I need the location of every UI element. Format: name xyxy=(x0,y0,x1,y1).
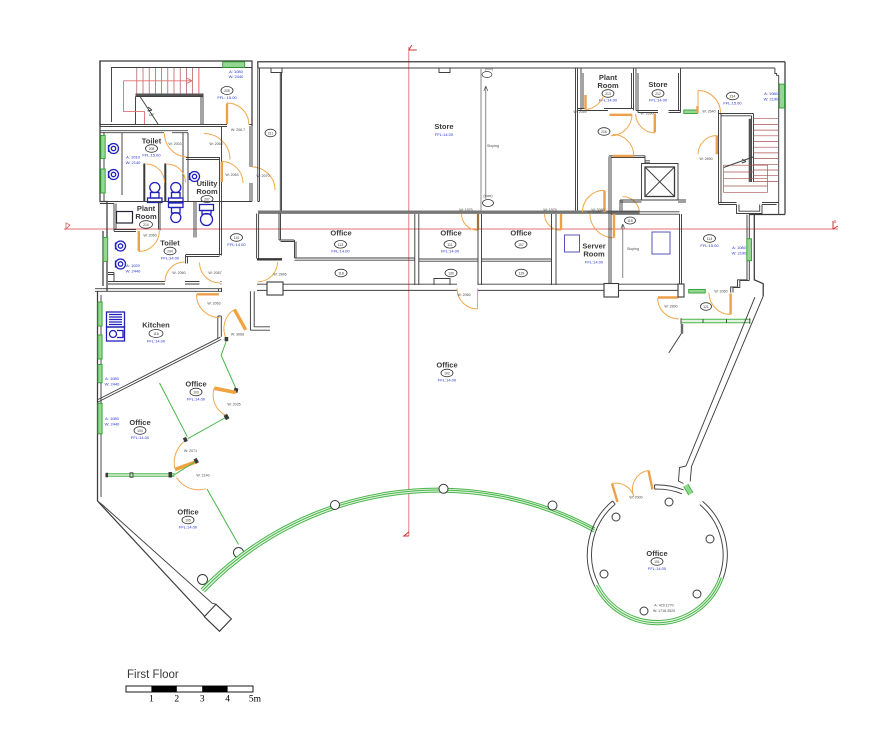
svg-text:107: 107 xyxy=(518,243,524,247)
svg-text:W: 2003: W: 2003 xyxy=(168,142,181,146)
svg-text:FFL:14.00: FFL:14.00 xyxy=(187,397,206,402)
svg-text:211: 211 xyxy=(268,132,274,136)
svg-text:102: 102 xyxy=(444,372,450,376)
svg-text:114: 114 xyxy=(707,237,713,241)
svg-text:W: 2063: W: 2063 xyxy=(209,142,222,146)
svg-text:W: 2190: W: 2190 xyxy=(764,97,780,102)
svg-text:W: 2190: W: 2190 xyxy=(732,251,748,256)
svg-text:W: 2890: W: 2890 xyxy=(664,305,677,309)
svg-text:Office: Office xyxy=(330,229,351,238)
svg-text:Office: Office xyxy=(646,549,667,558)
svg-text:W: 2140: W: 2140 xyxy=(196,474,209,478)
svg-text:FFL:15.00: FFL:15.00 xyxy=(723,101,742,106)
svg-text:113: 113 xyxy=(338,243,344,247)
svg-text:W: 2846: W: 2846 xyxy=(273,273,286,277)
svg-text:216: 216 xyxy=(601,130,607,134)
svg-text:Room: Room xyxy=(597,81,619,90)
svg-text:FFL:14.00: FFL:14.00 xyxy=(648,566,667,571)
svg-text:FFL:14.00: FFL:14.00 xyxy=(331,248,350,253)
svg-text:W: 2060: W: 2060 xyxy=(172,271,185,275)
svg-text:W: 2640: W: 2640 xyxy=(702,110,715,114)
svg-text:S: S xyxy=(833,219,836,224)
svg-text:Room: Room xyxy=(135,212,157,221)
svg-text:Office: Office xyxy=(436,361,457,370)
svg-text:210: 210 xyxy=(143,223,149,227)
svg-text:213: 213 xyxy=(605,92,611,96)
svg-text:A: 429.1770: A: 429.1770 xyxy=(654,604,673,608)
svg-text:W: 2070: W: 2070 xyxy=(256,174,269,178)
svg-text:W: 1975: W: 1975 xyxy=(543,208,556,212)
svg-text:W: 2000: W: 2000 xyxy=(629,496,642,500)
svg-text:A: 1080: A: 1080 xyxy=(764,91,779,96)
svg-text:W: 1718.3520: W: 1718.3520 xyxy=(653,609,675,613)
svg-text:130: 130 xyxy=(448,272,454,276)
svg-text:W: 2067: W: 2067 xyxy=(208,271,221,275)
svg-text:W: 2059: W: 2059 xyxy=(573,110,586,114)
svg-text:A: 1080: A: 1080 xyxy=(732,245,747,250)
svg-text:Office: Office xyxy=(129,418,150,427)
svg-text:208: 208 xyxy=(149,147,155,151)
svg-text:W: 2060: W: 2060 xyxy=(457,293,470,297)
svg-text:1: 1 xyxy=(149,695,154,705)
svg-text:W: 2060: W: 2060 xyxy=(143,234,156,238)
svg-text:Sloping: Sloping xyxy=(627,247,639,251)
svg-text:105: 105 xyxy=(185,519,191,523)
svg-text:FFL:14.00: FFL:14.00 xyxy=(179,525,198,530)
svg-text:116: 116 xyxy=(153,332,159,336)
svg-text:209: 209 xyxy=(224,89,230,93)
svg-text:W: 2440: W: 2440 xyxy=(105,382,121,387)
svg-text:214: 214 xyxy=(730,95,736,99)
svg-text:111: 111 xyxy=(447,243,452,247)
svg-text:Office: Office xyxy=(185,380,206,389)
svg-text:FFL:14.00: FFL:14.00 xyxy=(161,256,180,261)
svg-text:W: 2060: W: 2060 xyxy=(714,290,727,294)
svg-text:W: 2440: W: 2440 xyxy=(229,74,245,79)
svg-text:207: 207 xyxy=(204,198,210,202)
svg-text:FFL:14.00: FFL:14.00 xyxy=(585,260,604,265)
svg-text:Store: Store xyxy=(434,122,453,131)
svg-text:W: 2063: W: 2063 xyxy=(207,302,220,306)
svg-text:FFL:14.00: FFL:14.00 xyxy=(435,132,454,137)
svg-text:W: 2035: W: 2035 xyxy=(227,403,240,407)
svg-text:Office: Office xyxy=(177,508,198,517)
svg-text:A: 1080: A: 1080 xyxy=(105,416,120,421)
svg-text:UP: UP xyxy=(149,113,155,117)
svg-text:A: 1020: A: 1020 xyxy=(126,263,141,268)
svg-text:W: 206.7: W: 206.7 xyxy=(231,128,245,132)
svg-text:101: 101 xyxy=(654,560,660,564)
svg-text:FFL:15.00: FFL:15.00 xyxy=(700,243,719,248)
svg-text:FFL: 15.00: FFL: 15.00 xyxy=(217,95,237,100)
svg-text:Kitchen: Kitchen xyxy=(142,321,170,330)
svg-text:First Floor: First Floor xyxy=(127,669,179,681)
svg-text:W: 3080: W: 3080 xyxy=(591,208,604,212)
svg-text:204: 204 xyxy=(167,250,173,254)
svg-text:115: 115 xyxy=(627,219,633,223)
svg-text:FFL:15.00: FFL:15.00 xyxy=(142,153,161,158)
svg-text:W: 2140: W: 2140 xyxy=(126,160,142,165)
svg-text:Room: Room xyxy=(196,187,218,196)
svg-text:118: 118 xyxy=(338,272,344,276)
svg-text:103: 103 xyxy=(193,391,199,395)
svg-text:121: 121 xyxy=(703,305,709,309)
svg-text:Toilet: Toilet xyxy=(142,137,162,146)
svg-text:Office: Office xyxy=(440,229,461,238)
svg-text:104: 104 xyxy=(137,429,143,433)
svg-text:129: 129 xyxy=(519,272,525,276)
svg-text:W: 1975: W: 1975 xyxy=(459,208,472,212)
svg-text:W: 2690: W: 2690 xyxy=(699,157,712,161)
svg-text:212: 212 xyxy=(655,92,661,96)
svg-text:A: 1080: A: 1080 xyxy=(105,376,120,381)
svg-text:W: 2690: W: 2690 xyxy=(640,112,653,116)
svg-text:W: 2440: W: 2440 xyxy=(105,422,121,427)
svg-text:2: 2 xyxy=(174,695,179,705)
svg-text:FFL:14.00: FFL:14.00 xyxy=(131,435,150,440)
svg-text:FFL:14.00: FFL:14.00 xyxy=(649,98,668,103)
svg-text:(min): (min) xyxy=(485,67,493,71)
svg-text:FFL:14.00: FFL:14.00 xyxy=(441,248,460,253)
svg-text:W: 2063: W: 2063 xyxy=(225,173,238,177)
svg-text:W: 3066: W: 3066 xyxy=(231,333,244,337)
svg-text:5m: 5m xyxy=(249,695,262,705)
svg-text:Store: Store xyxy=(648,80,667,89)
svg-text:FFL:14.00: FFL:14.00 xyxy=(227,242,246,247)
svg-text:4: 4 xyxy=(225,695,230,705)
svg-text:W: 2440: W: 2440 xyxy=(126,269,142,274)
svg-text:FFL:14.00: FFL:14.00 xyxy=(438,378,457,383)
svg-text:3: 3 xyxy=(200,695,205,705)
svg-text:Toilet: Toilet xyxy=(160,239,180,248)
svg-text:Room: Room xyxy=(583,250,605,259)
svg-text:110: 110 xyxy=(234,236,240,240)
svg-text:W: 2071: W: 2071 xyxy=(184,449,197,453)
svg-text:(max): (max) xyxy=(483,194,492,198)
svg-text:Sloping: Sloping xyxy=(487,144,499,148)
svg-text:Office: Office xyxy=(510,229,531,238)
svg-text:FFL:14.00: FFL:14.00 xyxy=(147,339,166,344)
svg-text:A: 1010: A: 1010 xyxy=(126,155,141,160)
